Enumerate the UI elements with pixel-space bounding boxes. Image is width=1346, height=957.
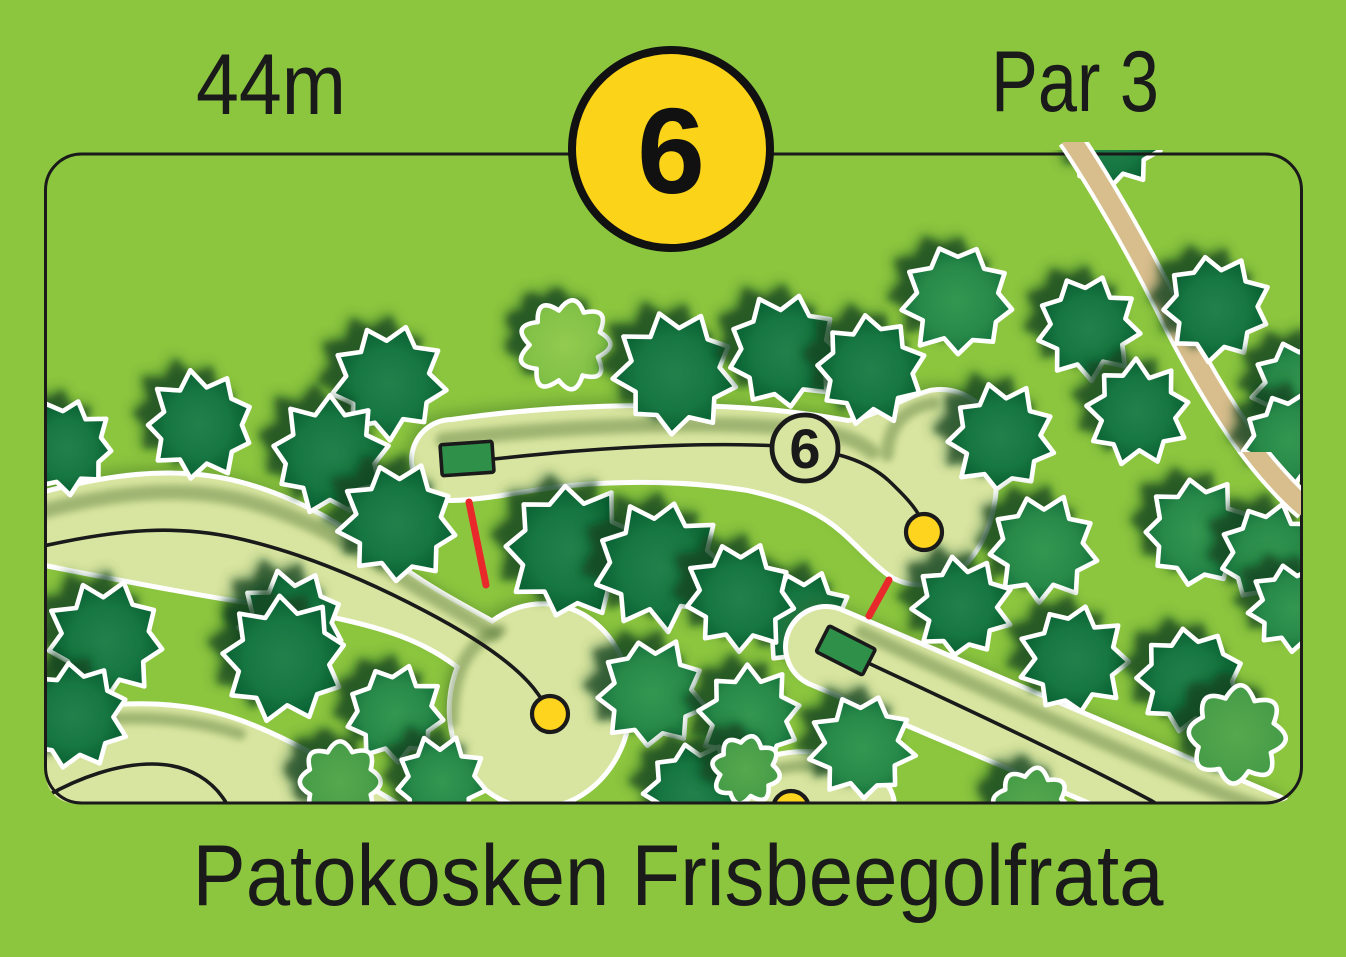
svg-text:44m: 44m <box>196 37 346 133</box>
svg-text:Par 3: Par 3 <box>991 34 1159 130</box>
svg-text:Patokosken Frisbeegolfrata: Patokosken Frisbeegolfrata <box>193 828 1164 924</box>
svg-text:6: 6 <box>789 417 820 480</box>
svg-text:6: 6 <box>637 83 705 219</box>
